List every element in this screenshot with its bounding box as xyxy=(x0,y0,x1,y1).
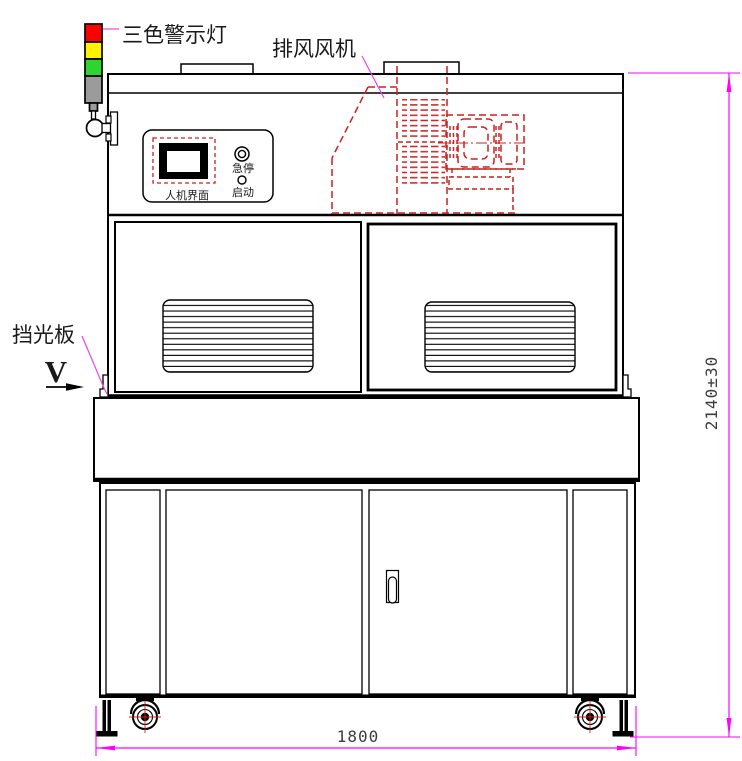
table-body xyxy=(94,398,639,481)
right-foot-post xyxy=(620,700,624,731)
view-marker-letter: V xyxy=(45,354,68,389)
door-handle-grip xyxy=(389,577,397,603)
bracket-tab xyxy=(106,116,111,123)
left-foot-post xyxy=(108,700,112,731)
right-caster xyxy=(574,697,606,733)
dimension-arrow xyxy=(96,746,115,751)
warning-light-green-segment xyxy=(85,59,102,76)
hmi-panel: 人机界面 急停 启动 xyxy=(143,130,273,202)
warning-light-arm xyxy=(102,124,111,133)
machine-front-view-drawing: 人机界面 急停 启动 xyxy=(0,0,742,761)
light-shield-leader xyxy=(82,336,107,394)
left-door xyxy=(166,490,362,694)
start-label: 启动 xyxy=(232,186,254,199)
warning-light-stem xyxy=(90,103,98,111)
left-stile-panel xyxy=(106,490,160,694)
width-dimension: 1800 xyxy=(96,706,636,756)
hmi-screen-display xyxy=(167,151,200,172)
warning-light-ball-joint xyxy=(87,120,104,137)
width-dimension-value: 1800 xyxy=(337,727,380,746)
roof-vent-cap-left xyxy=(181,64,253,74)
emergency-stop-button-inner xyxy=(238,150,245,157)
height-dimension-value: 2140±30 xyxy=(702,356,721,430)
dimension-arrow xyxy=(727,73,732,92)
cad-drawing-canvas: 人机界面 急停 启动 xyxy=(0,0,742,761)
height-dimension: 2140±30 xyxy=(628,73,740,737)
table-band xyxy=(94,398,639,481)
hmi-screen-label: 人机界面 xyxy=(165,188,209,202)
warning-light-yellow-segment xyxy=(85,42,102,59)
exhaust-fan-label: 排风风机 xyxy=(272,38,356,61)
right-louver-vent xyxy=(425,302,575,372)
start-button xyxy=(238,176,246,184)
dimension-arrow xyxy=(727,718,732,737)
warning-light-rod xyxy=(92,111,96,119)
left-louver-vent xyxy=(163,300,313,372)
dimension-arrow xyxy=(617,746,636,751)
right-stile-panel xyxy=(573,490,627,694)
right-foot-base xyxy=(613,731,634,737)
warning-light-base xyxy=(85,76,102,103)
right-window-panel xyxy=(368,224,616,390)
left-foot-post xyxy=(103,700,107,731)
right-foot-post xyxy=(625,700,629,731)
emergency-stop-label: 急停 xyxy=(232,161,254,175)
view-direction-marker: V xyxy=(45,354,84,391)
view-arrow-head xyxy=(66,383,84,391)
warning-light-label: 三色警示灯 xyxy=(122,24,227,47)
left-foot-base xyxy=(97,731,118,737)
lower-cabinet xyxy=(100,483,635,697)
light-shield-right xyxy=(623,375,631,397)
left-caster xyxy=(129,697,161,733)
light-shield-label: 挡光板 xyxy=(12,324,75,347)
warning-light-red-segment xyxy=(85,24,102,42)
bracket-tab xyxy=(106,134,111,141)
left-window-panel xyxy=(115,222,361,392)
